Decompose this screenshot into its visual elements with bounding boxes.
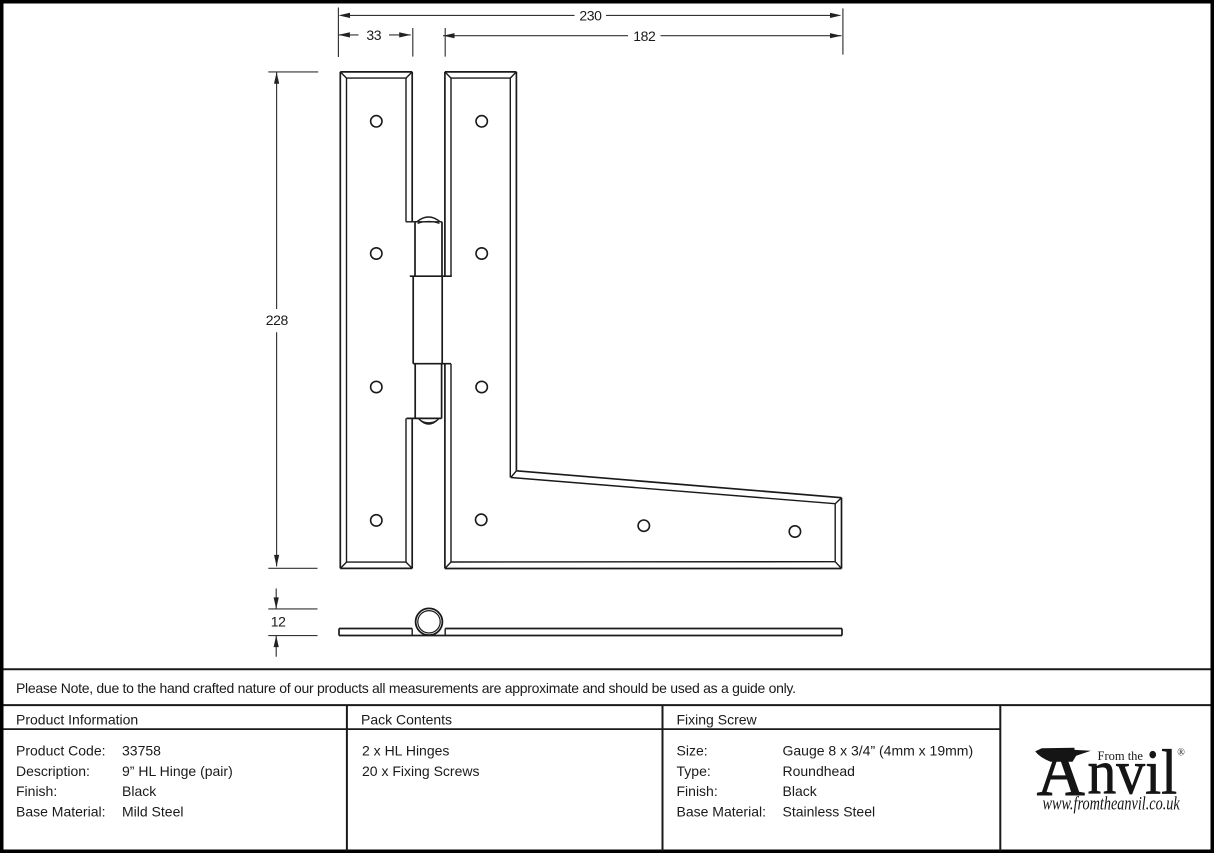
svg-text:Please Note, due to the hand c: Please Note, due to the hand crafted nat…	[16, 680, 796, 696]
svg-text:2 x HL Hinges: 2 x HL Hinges	[362, 742, 449, 758]
svg-text:182: 182	[633, 28, 656, 44]
svg-text:228: 228	[266, 312, 289, 328]
svg-text:Fixing Screw: Fixing Screw	[677, 712, 758, 728]
svg-text:Product Information: Product Information	[16, 712, 138, 728]
svg-text:®: ®	[1177, 748, 1185, 759]
svg-text:Description:: Description:	[16, 763, 90, 779]
svg-text:Mild Steel: Mild Steel	[122, 804, 183, 820]
svg-text:20 x Fixing Screws: 20 x Fixing Screws	[362, 763, 479, 779]
svg-text:9” HL Hinge (pair): 9” HL Hinge (pair)	[122, 763, 233, 779]
svg-text:Gauge 8 x 3/4” (4mm x 19mm): Gauge 8 x 3/4” (4mm x 19mm)	[783, 742, 974, 758]
svg-text:Finish:: Finish:	[677, 783, 718, 799]
svg-text:Pack Contents: Pack Contents	[361, 712, 452, 728]
svg-text:Product Code:: Product Code:	[16, 742, 106, 758]
svg-text:Size:: Size:	[677, 742, 708, 758]
svg-text:Roundhead: Roundhead	[783, 763, 855, 779]
svg-text:Black: Black	[122, 783, 157, 799]
svg-text:www.fromtheanvil.co.uk: www.fromtheanvil.co.uk	[1043, 793, 1181, 814]
svg-text:Finish:: Finish:	[16, 783, 57, 799]
svg-text:33758: 33758	[122, 742, 161, 758]
svg-text:230: 230	[579, 8, 602, 24]
svg-text:Black: Black	[783, 783, 818, 799]
svg-text:Base Material:: Base Material:	[16, 804, 105, 820]
svg-text:Type:: Type:	[677, 763, 711, 779]
svg-text:Base Material:: Base Material:	[677, 804, 766, 820]
svg-text:33: 33	[366, 27, 381, 43]
svg-text:Stainless Steel: Stainless Steel	[783, 804, 876, 820]
svg-text:12: 12	[271, 614, 286, 630]
